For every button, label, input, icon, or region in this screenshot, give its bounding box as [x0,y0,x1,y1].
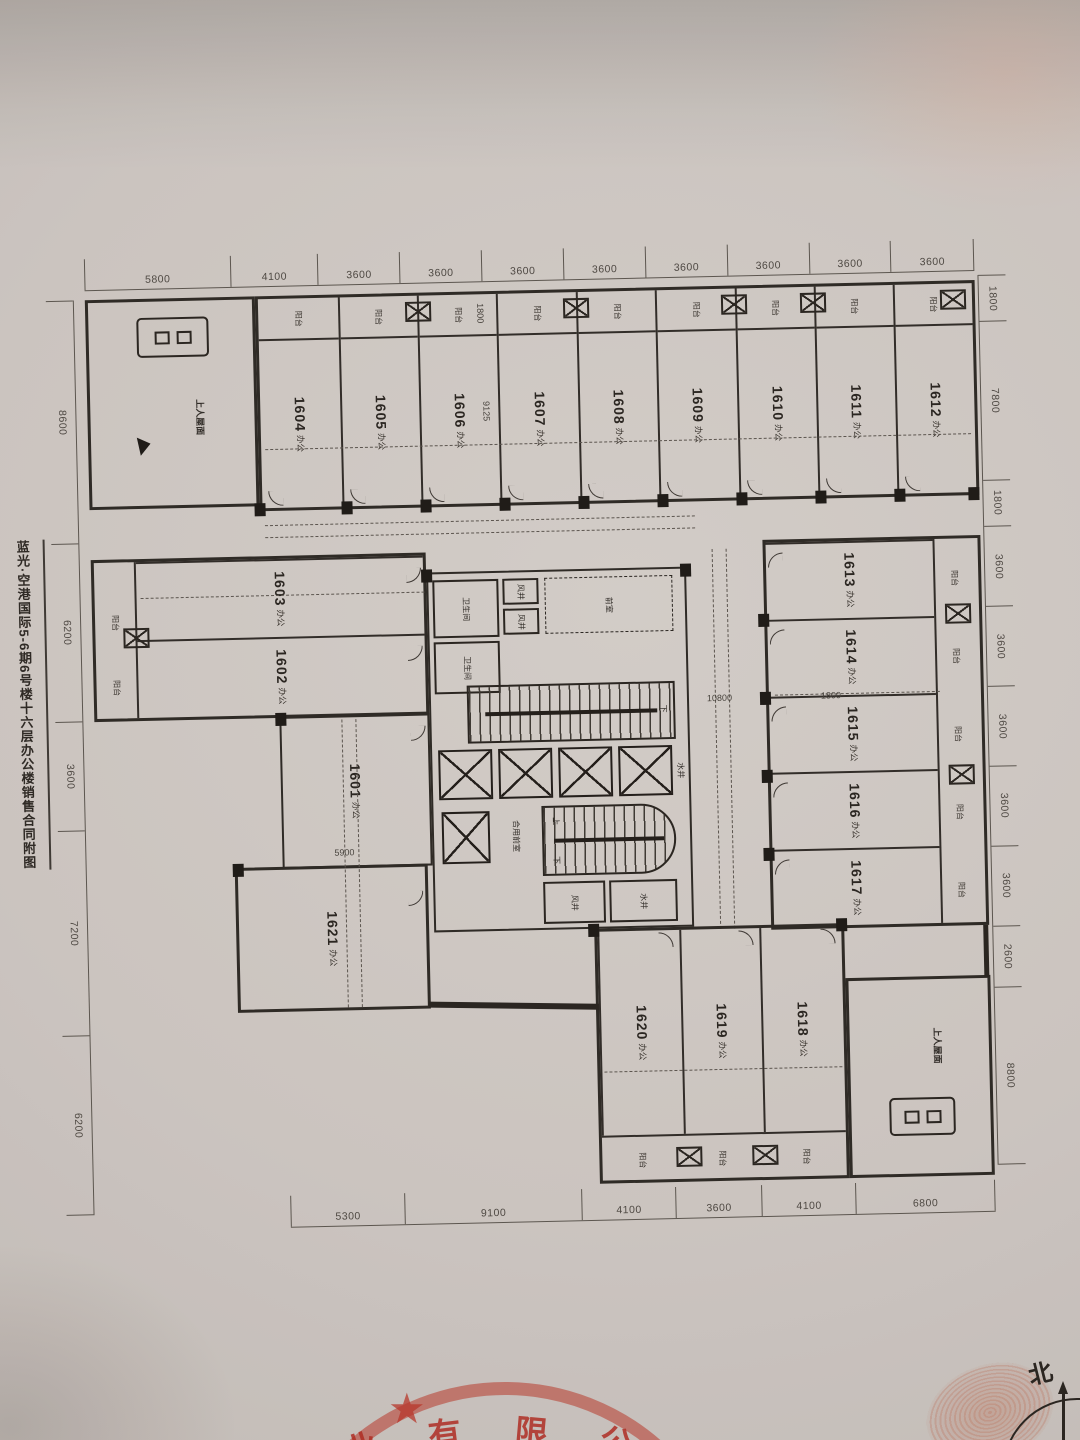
balcony-label: 阳台 [111,680,122,696]
room-1620: 1620办公 [597,930,684,1136]
top-room-strip: 阳台 1604办公 阳台 1605办公 阳台 1606办公 阳台 1607办公 … [255,280,980,511]
door-arc [771,706,786,721]
column-marker [254,503,265,516]
room-1614: 1614办公 [767,616,936,697]
door-arc [820,928,835,943]
dimension-label: 3600 [64,764,77,790]
balcony-label: 阳台 [452,307,463,323]
column-marker [275,713,286,726]
dimension-label: 1800 [991,490,1004,516]
elevator [438,749,493,800]
room-1616: 1616办公 [771,769,940,850]
dimension-segment: 5300 [290,1193,405,1227]
room-type-label: 办公 [798,1040,810,1057]
balcony-label: 阳台 [849,298,860,314]
stair-rail [555,836,664,842]
room-type-label: 办公 [844,591,856,608]
shading-triangle [131,438,151,458]
stair-direction-label: 下 [658,705,669,713]
red-seal-star-icon: ★ [388,1384,426,1433]
room-number: 1611 [848,384,865,419]
room-1609: 阳台 1609办公 [655,288,739,499]
dimension-label: 6800 [913,1197,939,1210]
dimension-label: 1800 [986,286,999,312]
column-marker [762,770,773,783]
balcony-label: 阳台 [928,296,939,312]
room-tag: 1609办公 [690,387,707,443]
roof-terrace-label: 上人屋面 [194,399,208,435]
balcony-label: 阳台 [956,882,967,898]
dimension-label: 4100 [262,271,288,284]
inner-dimension: 10800 [707,693,732,704]
ac-unit-icon [563,298,589,319]
staircase-lower: 上 下 [541,803,677,876]
column-marker [341,501,352,514]
column-marker [815,490,826,503]
room-tag: 1603办公 [271,571,288,627]
roof-terrace-bottom-right: 上人屋面 [845,975,995,1178]
room-type-label: 办公 [849,821,861,838]
dimension-segment: 3600 [988,685,1017,766]
red-seal-character: 有 [425,1406,464,1440]
room-number: 1619 [714,1003,731,1039]
room-type-label: 办公 [274,609,286,626]
room-tag: 1602办公 [273,649,290,705]
right-wing: 1613办公 1614办公 1615办公 1616办公 1617办公 阳台 阳台… [762,535,989,930]
dimension-segment: 3600 [563,247,646,280]
air-shaft: 风井 [503,608,540,635]
balcony-label: 阳台 [373,308,384,324]
column-marker [894,489,905,502]
balcony-label: 阳台 [637,1152,648,1168]
dimension-segment: 7200 [58,831,90,1037]
room-1605: 阳台 1605办公 [337,296,421,507]
room-number: 1606 [452,392,469,428]
room-type-label: 办公 [276,687,288,704]
room-tag: 1614办公 [843,629,860,685]
drawing-title: 蓝光·空港国际5-6期6号楼十六层办公楼销售合同附图 [7,540,52,871]
balcony-label: 阳台 [954,804,965,820]
room-tag: 1613办公 [841,553,858,609]
room-number: 1615 [845,706,862,742]
room-number: 1616 [846,783,863,819]
ac-unit-icon [676,1146,702,1167]
bathroom: 卫生间 [432,579,499,638]
room-number: 1608 [610,389,627,425]
dimension-segment: 3600 [675,1185,762,1218]
room-number-area: 1612办公 [895,325,976,494]
skylight-pane [926,1109,941,1122]
room-number: 1609 [690,387,707,423]
room-type-label: 办公 [636,1043,648,1060]
balcony-label: 阳台 [292,310,303,326]
room-tag: 1607办公 [531,391,548,447]
room-tag: 1615办公 [845,706,862,762]
balcony-label: 阳台 [770,299,781,315]
dimension-label: 9100 [481,1207,507,1220]
dimension-label: 3600 [994,633,1007,659]
balcony: 阳台 [816,285,894,329]
room-tag: 1606办公 [452,392,469,448]
dimension-segment: 3600 [481,248,564,281]
red-seal-character: 限 [513,1405,550,1440]
dimension-label: 8800 [1004,1063,1017,1089]
ac-unit-icon [940,289,966,310]
dimension-segment: 3600 [990,765,1019,846]
door-arc [773,783,788,798]
room-number: 1602 [273,649,290,685]
dimension-segment: 3600 [986,605,1015,686]
ac-unit-icon [800,292,826,313]
dimension-segment: 3600 [726,243,809,276]
dimension-segment: 6200 [62,1036,93,1216]
dimension-label: 7200 [67,921,80,947]
column-marker [499,498,510,511]
room-number: 1605 [372,394,389,430]
room-1602: 1602办公 [138,634,427,718]
dimension-label: 2600 [1001,944,1014,970]
room-number-area: 1611办公 [817,327,897,496]
left-wing: 1603办公 1602办公 阳台 阳台 [91,553,430,723]
ac-unit-icon [405,301,431,322]
dimension-label: 3600 [1000,873,1013,899]
dimension-label: 3600 [837,258,863,271]
room-number-area: 1609办公 [658,330,739,499]
corridor-dashed-line [712,549,722,929]
ac-unit-icon [752,1145,778,1166]
balcony-label: 阳台 [949,570,960,586]
room-number: 1613 [841,553,858,589]
balcony: 阳台 [258,297,339,341]
column-marker [763,848,774,861]
door-arc [768,552,783,567]
ac-unit-icon [945,603,971,624]
room-number: 1607 [531,391,548,427]
room-1613: 1613办公 [765,539,934,620]
room-tag: 1604办公 [292,396,309,452]
room-1608: 阳台 1608办公 [576,290,660,501]
water-shaft: 水井 [609,879,678,923]
dimension-label: 7800 [989,388,1002,414]
room-1604: 阳台 1604办公 [258,297,342,508]
corridor-dashed-line [265,527,695,538]
dimension-segment: 4100 [230,254,318,287]
column-marker [421,569,432,582]
elevator [558,746,613,797]
dimension-label: 3600 [920,256,946,269]
balcony-label: 阳台 [532,305,543,321]
dimension-label: 4100 [616,1204,642,1217]
elevator [498,748,553,799]
dimension-segment: 1800 [978,274,1006,321]
column-marker [760,692,771,705]
skylight-icon [889,1097,956,1136]
door-arc [738,930,753,945]
dimension-label: 3600 [998,793,1011,819]
dimension-segment: 3600 [55,722,84,832]
room-1618: 1618办公 [759,926,846,1132]
room-type-label: 办公 [327,949,339,966]
column-marker [578,496,589,509]
balcony-label: 阳台 [952,726,963,742]
bottom-wing: 1620办公 1619办公 1618办公 阳台 阳台 阳台 [594,923,850,1184]
air-shaft: 风井 [502,578,539,605]
door-arc [775,860,790,875]
dimension-segment: 3600 [890,239,974,272]
dimension-segment: 8800 [995,986,1026,1164]
dimension-label: 3600 [674,261,700,274]
dimension-label: 3600 [706,1202,732,1215]
room-tag: 1608办公 [610,389,627,445]
dimension-segment: 3600 [991,845,1020,926]
column-marker [420,499,431,512]
dimension-label: 5300 [335,1210,361,1223]
room-tag: 1605办公 [372,394,389,450]
dimension-label: 3600 [346,269,372,282]
dimension-label: 5800 [145,273,171,286]
staircase-upper: 下 [467,681,676,744]
dimension-segment: 3600 [399,250,482,283]
dimension-segment: 2600 [993,925,1021,987]
north-needle [1062,1392,1065,1440]
central-core: 卫生间 卫生间 风井 风井 前室 下 水井 合用前室 上 下 风井 水井 [426,567,694,933]
dimension-label: 3600 [428,267,454,280]
door-arc [769,629,784,644]
dimension-segment: 3600 [984,525,1013,606]
dimension-label: 6200 [61,620,74,646]
room-tag: 1612办公 [927,382,944,438]
column-marker [758,614,769,627]
column-marker [680,564,691,577]
room-number: 1610 [769,385,786,421]
door-arc [659,932,674,947]
column-marker [233,864,244,877]
ac-unit-icon [721,294,747,315]
room-number-area: 1607办公 [499,334,580,503]
room-1610: 阳台 1610办公 [734,287,818,498]
room-number: 1620 [633,1005,650,1041]
room-number-area: 1621办公 [238,867,428,1010]
room-number: 1604 [292,396,309,432]
room-tag: 1621办公 [324,910,341,966]
room-tag: 1619办公 [714,1003,731,1059]
room-tag: 1611办公 [848,384,865,439]
dimension-segment: 4100 [761,1183,856,1216]
room-number-area: 1610办公 [737,329,818,498]
room-number-area: 1604办公 [259,339,342,508]
dimension-label: 8600 [56,410,69,436]
room-number: 1617 [848,860,865,896]
room-number: 1603 [271,571,288,607]
stair-direction-label: 上 [550,817,561,825]
dimension-segment: 5800 [84,256,230,290]
elevator [618,745,673,796]
column-marker [968,487,979,500]
room-1619: 1619办公 [680,928,764,1134]
dimension-segment: 6200 [51,543,82,722]
balcony-label: 阳台 [611,303,622,319]
dimension-chain-bottom: 5300 9100 4100 3600 4100 6800 [290,1180,996,1228]
room-number: 1618 [795,1001,812,1037]
door-arc [408,646,423,661]
room-1615: 1615办公 [769,693,938,774]
dimension-segment: 1800 [983,479,1011,526]
inner-dimension: 1800 [821,690,841,700]
inner-dimension: 1800 [475,303,485,323]
room-1617: 1617办公 [772,846,941,927]
skylight-pane [904,1110,919,1123]
air-shaft: 风井 [543,881,606,924]
room-tag: 1616办公 [846,783,863,839]
dimension-segment: 4100 [581,1187,676,1220]
dimension-label: 3600 [510,265,536,278]
room-type-label: 办公 [851,898,863,915]
dimension-segment: 3600 [808,241,891,274]
dimension-segment: 3600 [317,252,400,285]
water-shaft-label: 水井 [675,762,686,778]
ac-unit-icon [949,764,975,785]
balcony-label: 阳台 [109,615,120,631]
floor-plan-sheet: 5800 4100 3600 3600 3600 3600 3600 3600 … [69,235,1011,1256]
balcony-label: 阳台 [690,301,701,317]
column-marker [836,918,847,931]
dimension-label: 4100 [796,1200,822,1213]
room-number-area: 1605办公 [340,338,421,507]
room-1606: 阳台 1606办公 [417,294,501,505]
floor-plan-photo: 5800 4100 3600 3600 3600 3600 3600 3600 … [0,0,1080,1440]
roof-terrace-label: 上人屋面 [931,1027,945,1063]
exterior-wall [983,925,989,977]
dimension-label: 3600 [996,713,1009,739]
dimension-segment: 3600 [645,245,728,278]
column-marker [736,492,747,505]
balcony: 阳台 [578,290,656,334]
room-1611: 阳台 1611办公 [814,285,897,496]
elevator [442,811,491,864]
dimension-segment: 7800 [980,321,1011,480]
balcony-label: 阳台 [717,1150,728,1166]
exterior-wall [429,1002,599,1010]
skylight-pane [154,331,169,344]
room-type-label: 办公 [717,1041,729,1058]
room-tag: 1617办公 [848,860,865,916]
dimension-segment: 8600 [46,300,78,543]
room-type-label: 办公 [846,668,858,685]
room-type-label: 办公 [848,744,860,761]
balcony-label: 阳台 [801,1148,812,1164]
column-marker [588,924,599,937]
room-tag: 1610办公 [769,385,786,441]
corridor-dashed-line [265,515,695,526]
dimension-label: 6200 [72,1113,85,1139]
room-1607: 阳台 1607办公 [496,292,580,503]
roof-terrace-top-left: 上人屋面 [85,296,260,510]
room-number: 1612 [927,382,944,418]
inner-dimension: 9125 [481,401,491,421]
column-marker [657,494,668,507]
dimension-label: 3600 [755,259,781,272]
room-number: 1614 [843,629,860,665]
dimension-label: 3600 [992,553,1005,579]
room-1621: 1621办公 [235,864,431,1013]
vestibule: 前室 [544,575,673,634]
room-tag: 1618办公 [795,1001,812,1057]
door-arc [406,568,421,583]
room-1612: 阳台 1612办公 [892,283,976,494]
room-number-area: 1608办公 [578,332,659,501]
room-tag: 1620办公 [633,1005,650,1061]
ac-unit-icon [123,628,149,649]
stair-rail [486,708,657,716]
stair-direction-label: 下 [551,856,562,864]
corridor-dashed-line [726,549,736,929]
room-number: 1621 [324,910,341,946]
dimension-segment: 9100 [404,1189,582,1224]
shared-vestibule-label: 合用前室 [510,820,522,852]
balcony-label: 阳台 [950,648,961,664]
dimension-segment: 6800 [855,1180,996,1214]
skylight-icon [136,316,209,358]
skylight-pane [176,330,191,343]
dimension-label: 3600 [592,263,618,276]
